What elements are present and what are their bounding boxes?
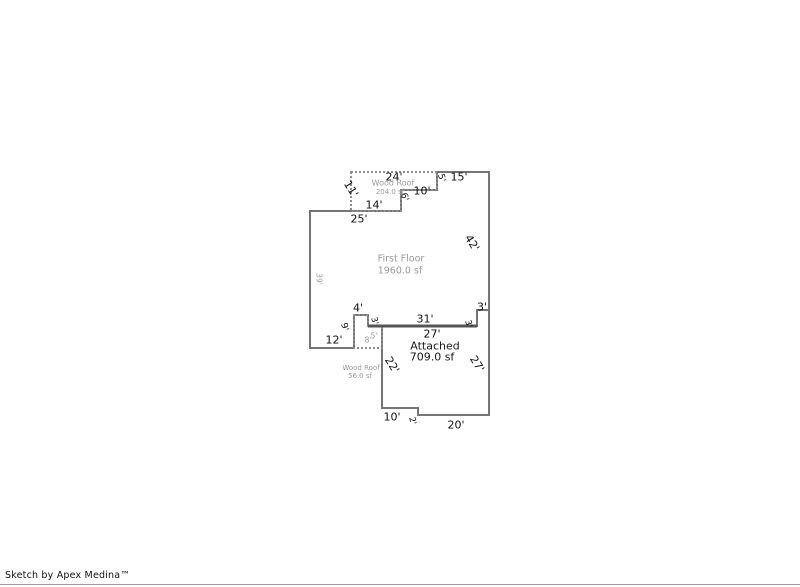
dim-top-15: 15' [450,171,467,184]
area-label-first-floor: First Floor [378,254,425,265]
dim-shared-31: 31' [416,313,433,326]
dim-top-25: 25' [350,213,367,226]
area-label-wood-roof-lower: Wood Roof [342,364,380,372]
dim-roof-14: 14' [365,199,382,212]
dim-rightstep-3h: 3' [477,301,487,314]
sketch-page: 24'15'5'10'6'14'11'25'42'39'4'3'9'12'8'5… [0,0,800,587]
footer-divider [0,584,800,585]
dim-bottom-20: 20' [447,419,464,432]
area-size-wood-roof-lower: 56.0 sf [348,372,372,380]
floor-plan-sketch: 24'15'5'10'6'14'11'25'42'39'4'3'9'12'8'5… [0,0,800,587]
area-size-wood-roof-upper: 204.0 sf [376,188,405,196]
dim-step-5: 5' [435,173,447,184]
dim-step-10: 10' [413,185,430,198]
dim-left-39: 39' [315,273,324,285]
dim-attached-22: 22' [382,354,402,375]
area-label-wood-roof-upper: Wood Roof [372,179,415,188]
area-size-attached: 709.0 sf [410,351,456,364]
dim-right-42: 42' [462,232,482,253]
dim-roof-5: 5' [371,332,378,341]
dim-roof-11: 11' [341,178,361,199]
sketch-credit: Sketch by Apex Medina™ [5,570,130,581]
dim-notch-4: 4' [353,302,363,315]
dim-attached-27: 27' [467,353,487,374]
dim-notch-9: 9' [338,322,350,333]
dim-bottom-10: 10' [383,411,400,424]
dim-bottom-12: 12' [325,334,342,347]
area-size-first-floor: 1960.0 sf [378,266,423,277]
dim-bottom-2: 2' [406,416,418,426]
dim-rightstep-3v: 3' [462,319,474,329]
